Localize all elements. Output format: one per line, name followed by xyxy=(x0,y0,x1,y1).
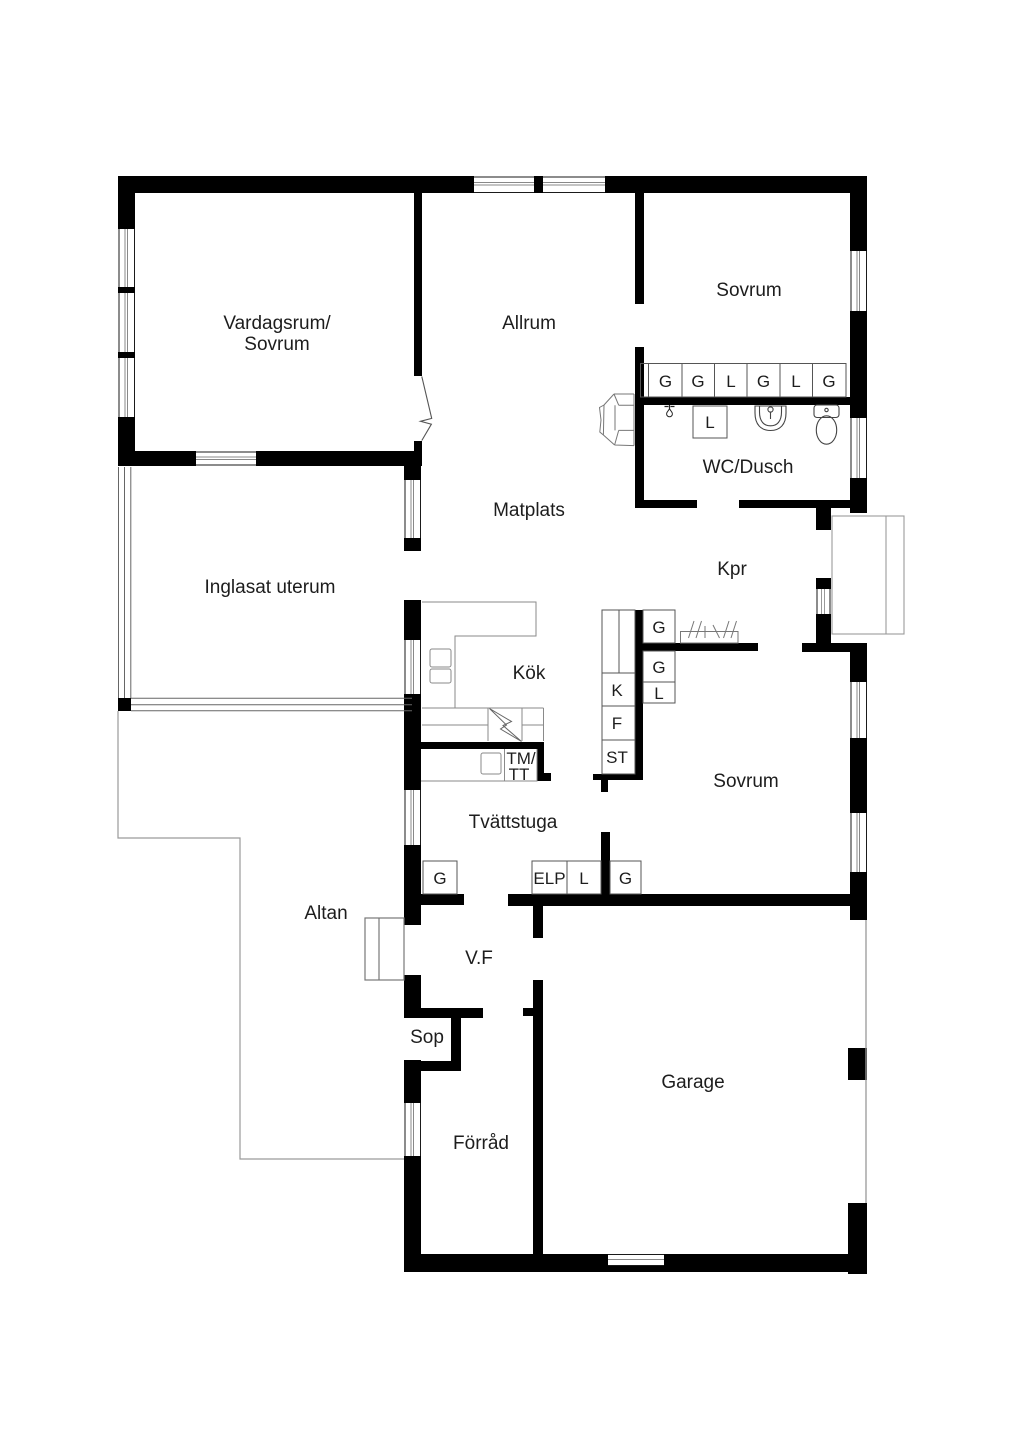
svg-text:Sovrum: Sovrum xyxy=(713,771,778,792)
svg-text:Kpr: Kpr xyxy=(717,559,747,580)
svg-text:K: K xyxy=(611,681,623,700)
svg-text:G: G xyxy=(619,869,632,888)
svg-text:Tvättstuga: Tvättstuga xyxy=(469,812,558,833)
svg-text:L: L xyxy=(726,372,735,391)
svg-text:Sovrum: Sovrum xyxy=(716,280,781,301)
svg-text:L: L xyxy=(654,684,663,703)
svg-text:Allrum: Allrum xyxy=(502,313,556,334)
svg-text:L: L xyxy=(705,413,714,432)
svg-text:G: G xyxy=(659,372,672,391)
svg-text:ST: ST xyxy=(606,748,628,767)
svg-text:Inglasat uterum: Inglasat uterum xyxy=(205,577,336,598)
svg-text:TT: TT xyxy=(509,765,530,784)
svg-text:G: G xyxy=(652,658,665,677)
svg-text:Vardagsrum/: Vardagsrum/ xyxy=(223,313,331,334)
svg-text:G: G xyxy=(691,372,704,391)
svg-text:G: G xyxy=(652,618,665,637)
svg-text:L: L xyxy=(791,372,800,391)
svg-text:F: F xyxy=(612,714,622,733)
svg-text:ELP: ELP xyxy=(533,869,565,888)
svg-text:Sop: Sop xyxy=(410,1027,444,1048)
svg-text:Förråd: Förråd xyxy=(453,1133,509,1154)
svg-text:Garage: Garage xyxy=(661,1072,724,1093)
svg-text:L: L xyxy=(579,869,588,888)
svg-text:V.F: V.F xyxy=(465,948,493,969)
svg-text:Matplats: Matplats xyxy=(493,500,565,521)
svg-text:G: G xyxy=(757,372,770,391)
svg-text:G: G xyxy=(822,372,835,391)
svg-text:Altan: Altan xyxy=(304,903,347,924)
svg-text:WC/Dusch: WC/Dusch xyxy=(703,457,794,478)
svg-text:G: G xyxy=(433,869,446,888)
svg-text:Kök: Kök xyxy=(513,663,546,684)
svg-text:Sovrum: Sovrum xyxy=(244,334,309,355)
